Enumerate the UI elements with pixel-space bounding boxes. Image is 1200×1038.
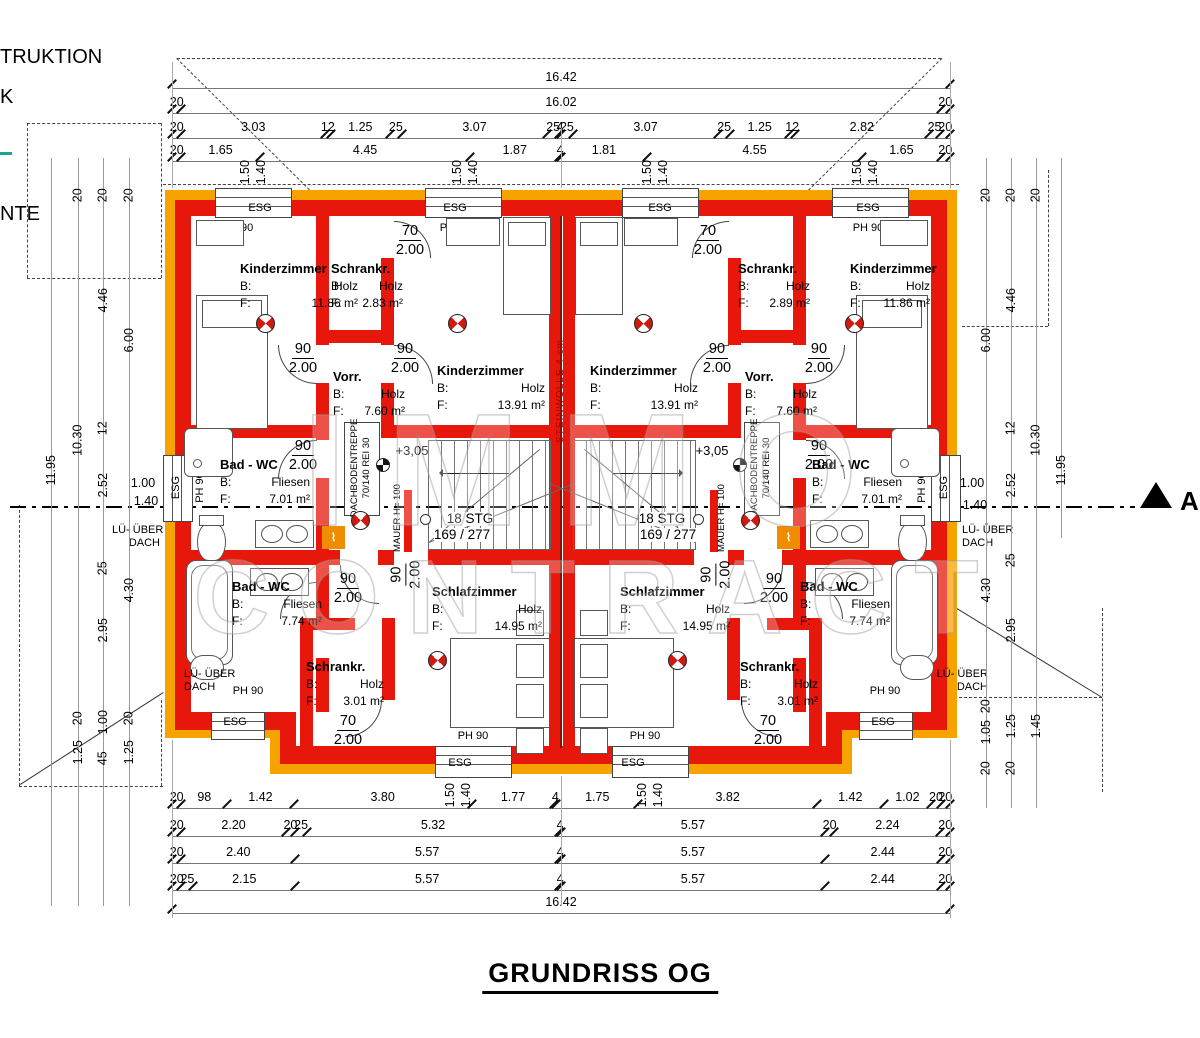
vent-note-line1: LÜ- ÜBER xyxy=(112,524,160,537)
left-box-right xyxy=(161,123,162,278)
area-value: 7.60 m² xyxy=(776,403,817,420)
floorplan-drawing: A TRUKTION K NTE STEINWOLLE 4 cm xyxy=(0,0,1200,1038)
wall-segment xyxy=(782,550,793,565)
outer-wall-red xyxy=(826,712,842,764)
extension-line xyxy=(561,128,562,188)
door-height: 2.00 xyxy=(407,557,425,593)
dim-label: 4.46 xyxy=(97,288,110,312)
attic-ladder-label: DACHBODENTREPPE 70/140 REI 30 xyxy=(348,408,374,528)
dim-label: 4.30 xyxy=(123,578,136,602)
bathtub xyxy=(186,560,233,665)
dim-row: 16.42 xyxy=(172,88,950,89)
room-label: Schrankr. B:Holz F:3.01 m² xyxy=(740,658,818,710)
door-width: 90 xyxy=(808,340,830,359)
vent-note-line2: DACH xyxy=(184,681,236,694)
room-name: Vorr. xyxy=(745,368,817,386)
door-width: 90 xyxy=(394,340,416,359)
door-width: 70 xyxy=(337,712,359,731)
dim-label: 1.05 xyxy=(980,720,993,744)
vent-note-line1: LÜ- ÜBER xyxy=(184,668,236,681)
dim-label: 20 xyxy=(72,711,85,725)
area-label: F: xyxy=(437,397,448,414)
floor-value: Holz xyxy=(706,601,730,618)
dim-label: 6.00 xyxy=(123,328,136,352)
eave-diagonal-left xyxy=(20,692,164,785)
area-value: 2.83 m² xyxy=(362,295,403,312)
attic-ladder-size: 70/140 REI 30 xyxy=(361,438,373,499)
left-box-bottom xyxy=(27,278,161,279)
area-value: 13.91 m² xyxy=(498,397,545,414)
room-name: Kinderzimmer xyxy=(850,260,930,278)
section-marker-triangle xyxy=(1140,482,1172,508)
vent-note-line2: DACH xyxy=(112,537,160,550)
bed-pillow xyxy=(580,222,618,246)
low-wall-text: MAUER H= 100 xyxy=(716,484,728,552)
extension-line xyxy=(172,740,173,918)
door-height: 2.00 xyxy=(750,731,786,749)
attic-ladder-text: DACHBODENTREPPE xyxy=(749,419,761,518)
nightstand xyxy=(580,728,608,754)
door-width: 90 xyxy=(292,437,314,456)
glass-label: ESG xyxy=(621,758,644,769)
dim-label: 1.40 xyxy=(467,160,480,184)
dim-label: 1.50 xyxy=(444,783,457,807)
attic-ladder-size: 70/140 REI 30 xyxy=(761,438,773,499)
floor-value: Holz xyxy=(794,676,818,693)
floor-value: Fliesen xyxy=(271,474,310,491)
room-name: Schrankr. xyxy=(738,260,810,278)
room-label: Vorr. B:Holz F:7.60 m² xyxy=(333,368,405,420)
door-size-label: 702.00 xyxy=(690,222,726,259)
glass-label: ESG xyxy=(871,717,894,728)
room-label: Bad - WC B:Fliesen F:7.74 m² xyxy=(800,578,890,630)
water-heater: ⌇ xyxy=(322,526,345,549)
dim-label: 1.25 xyxy=(1005,714,1018,738)
room-name: Kinderzimmer xyxy=(437,362,545,380)
area-label: F: xyxy=(620,618,631,635)
floor-label: B: xyxy=(740,676,751,693)
dim-label: 1.40 xyxy=(657,160,670,184)
glass-label: ESG xyxy=(248,203,271,214)
floor-value: Fliesen xyxy=(863,474,902,491)
bed-pillow xyxy=(580,644,608,678)
dim-label: 6.00 xyxy=(980,328,993,352)
floor-label: B: xyxy=(331,278,342,295)
parapet-label: PH 90 xyxy=(458,731,489,742)
outer-wall-orange xyxy=(270,764,852,774)
room-label: Kinderzimmer B:Holz F:13.91 m² xyxy=(437,362,545,414)
floor-label: B: xyxy=(800,596,811,613)
dim-label: 1.40 xyxy=(255,160,268,184)
dim-label: 20 xyxy=(1005,188,1018,202)
floor-label: B: xyxy=(232,596,243,613)
extension-line xyxy=(172,62,173,188)
door-size-label: 902.00 xyxy=(330,570,366,607)
outer-wall-orange xyxy=(270,730,280,774)
floor-label: B: xyxy=(306,676,317,693)
door-height: 2.00 xyxy=(330,731,366,749)
room-name: Schlafzimmer xyxy=(620,583,730,601)
dim-label: 45 xyxy=(97,751,110,765)
dim-label: 1.50 xyxy=(451,160,464,184)
left-lower-dash xyxy=(19,505,20,786)
door-width: 70 xyxy=(399,222,421,241)
ventilation-symbol xyxy=(634,314,653,333)
dim-row: 16.42 xyxy=(172,913,950,914)
outer-wall-red xyxy=(280,712,296,764)
door-size-label: 702.00 xyxy=(750,712,786,749)
water-heater-icon: ⌇ xyxy=(786,531,791,544)
door-width: 90 xyxy=(763,570,785,589)
dresser xyxy=(624,218,678,246)
dim-line xyxy=(103,158,104,906)
ventilation-symbol xyxy=(448,314,467,333)
wall-segment xyxy=(428,550,549,565)
area-label: F: xyxy=(850,295,861,312)
area-label: F: xyxy=(812,491,823,508)
dim-label: 2.95 xyxy=(1005,618,1018,642)
bed-pillow xyxy=(516,644,544,678)
nightstand xyxy=(580,610,608,636)
vent-over-roof-note: LÜ- ÜBER DACH xyxy=(936,668,988,694)
floor-label: B: xyxy=(620,601,631,618)
dim-label: 10.30 xyxy=(72,424,85,455)
floor-value: Holz xyxy=(521,380,545,397)
right-lower-dash-h xyxy=(959,697,1102,698)
door-size-label: 902.00 xyxy=(387,557,424,593)
ventilation-symbol xyxy=(256,314,275,333)
room-label: Bad - WC B:Fliesen F:7.01 m² xyxy=(220,456,310,508)
dim-label: 20 xyxy=(123,188,136,202)
wall-segment xyxy=(728,383,741,438)
door-height: 2.00 xyxy=(330,589,366,607)
edge-teal-mark xyxy=(0,152,12,155)
level-label: +3,05 xyxy=(696,444,729,457)
door-width: 90 xyxy=(387,564,406,586)
stair-count-label: 18 STG xyxy=(447,512,494,526)
dim-label: 20 xyxy=(980,761,993,775)
toilet xyxy=(197,523,226,561)
floor-value: Holz xyxy=(379,278,403,295)
dim-label: 12 xyxy=(1005,421,1018,435)
door-width: 90 xyxy=(292,340,314,359)
area-label: F: xyxy=(220,491,231,508)
low-wall-label: MAUER H= 100 xyxy=(392,478,404,558)
room-label: Schrankr. B:Holz F:2.89 m² xyxy=(738,260,810,312)
floor-label: B: xyxy=(745,386,756,403)
area-value: 14.95 m² xyxy=(683,618,730,635)
dim-label: 1.40 xyxy=(460,783,473,807)
section-marker-label: A xyxy=(1180,486,1199,517)
left-box-top xyxy=(27,123,161,124)
floor-label: B: xyxy=(220,474,231,491)
dim-label: 1.50 xyxy=(851,160,864,184)
area-value: 7.74 m² xyxy=(281,613,322,630)
room-label: Kinderzimmer B:Holz F:11.86 m² xyxy=(850,260,930,312)
dim-line xyxy=(1036,158,1037,808)
bed-pillow xyxy=(516,684,544,718)
glass-label: ESG xyxy=(648,203,671,214)
dresser xyxy=(446,218,500,246)
left-lower-right xyxy=(161,700,162,786)
party-wall-insulation-line xyxy=(560,216,562,748)
dim-line xyxy=(78,158,79,906)
room-label: Bad - WC B:Fliesen F:7.74 m² xyxy=(232,578,322,630)
stair-start-circle xyxy=(420,514,431,525)
door-height: 2.00 xyxy=(690,241,726,259)
low-wall-label: MAUER H= 100 xyxy=(716,478,728,558)
area-label: F: xyxy=(432,618,443,635)
room-label: Schlafzimmer B:Holz F:14.95 m² xyxy=(620,583,730,635)
area-value: 3.01 m² xyxy=(343,693,384,710)
door-size-label: 902.00 xyxy=(285,340,321,377)
window xyxy=(435,746,512,778)
double-washbasin xyxy=(255,520,314,548)
right-lower-dash-v xyxy=(1102,608,1103,792)
room-label: Schlafzimmer B:Holz F:14.95 m² xyxy=(432,583,542,635)
level-marker xyxy=(376,458,390,472)
dim-label: 1.40 xyxy=(652,783,665,807)
door-size-label: 702.00 xyxy=(330,712,366,749)
room-name: Schrankr. xyxy=(331,260,403,278)
dim-label: 20 xyxy=(123,711,136,725)
dim-label: 20 xyxy=(97,188,110,202)
floor-label: B: xyxy=(850,278,861,295)
ventilation-symbol xyxy=(428,651,447,670)
room-label: Kinderzimmer B:Holz F:13.91 m² xyxy=(590,362,698,414)
drawing-title: GRUNDRISS OG xyxy=(482,958,718,994)
floor-value: Holz xyxy=(360,676,384,693)
door-height: 2.00 xyxy=(699,359,735,377)
water-heater: ⌇ xyxy=(777,526,800,549)
dim-label: 12 xyxy=(97,421,110,435)
dim-label: 11.95 xyxy=(45,455,58,485)
nightstand xyxy=(516,728,544,754)
floor-label: B: xyxy=(333,386,344,403)
area-label: F: xyxy=(738,295,749,312)
floor-value: Fliesen xyxy=(283,596,322,613)
bathtub xyxy=(891,560,938,665)
glass-label: ESG xyxy=(172,475,183,498)
water-heater-icon: ⌇ xyxy=(331,531,336,544)
dim-label: 1.45 xyxy=(1030,714,1043,738)
area-value: 7.01 m² xyxy=(269,491,310,508)
room-label: Vorr. B:Holz F:7.60 m² xyxy=(745,368,817,420)
left-box-left xyxy=(27,123,28,278)
dim-label: 20 xyxy=(1005,761,1018,775)
parapet-label: PH 90 xyxy=(233,686,264,697)
toilet xyxy=(898,523,927,561)
edge-text-konstruktion: TRUKTION xyxy=(0,46,102,69)
stair-direction-arrow xyxy=(443,473,509,474)
extension-line xyxy=(950,740,951,918)
door-height: 2.00 xyxy=(756,589,792,607)
ventilation-symbol xyxy=(668,651,687,670)
area-label: F: xyxy=(232,613,243,630)
dim-label: 10.30 xyxy=(1030,424,1043,455)
floor-label: B: xyxy=(240,278,251,295)
room-name: Vorr. xyxy=(333,368,405,386)
roof-outline-top xyxy=(177,58,941,59)
glass-label: ESG xyxy=(443,203,466,214)
door-size-label: 902.00 xyxy=(756,570,792,607)
stair-start-circle xyxy=(693,514,704,525)
stair-direction-arrow xyxy=(613,473,679,474)
toilet-tank xyxy=(900,515,925,526)
attic-ladder-label: DACHBODENTREPPE 70/140 REI 30 xyxy=(748,408,774,528)
outer-wall-orange xyxy=(842,730,852,774)
room-label: Bad - WC B:Fliesen F:7.01 m² xyxy=(812,456,902,508)
vent-over-roof-note: LÜ- ÜBER DACH xyxy=(112,524,160,550)
dim-label: 2.95 xyxy=(97,618,110,642)
wall-segment xyxy=(741,330,793,343)
area-value: 7.74 m² xyxy=(849,613,890,630)
floor-value: Holz xyxy=(906,278,930,295)
dim-label: 1.50 xyxy=(239,160,252,184)
insulation-text: STEINWOLLE 4 cm xyxy=(555,339,568,443)
dim-label: 1.40 xyxy=(867,160,880,184)
floor-label: B: xyxy=(437,380,448,397)
dresser xyxy=(880,220,928,246)
door-size-label: 902.00 xyxy=(699,340,735,377)
door-height: 2.00 xyxy=(392,241,428,259)
door-size-label: 702.00 xyxy=(392,222,428,259)
dim-label: 1.00 xyxy=(960,477,984,490)
door-width: 90 xyxy=(808,437,830,456)
floor-value: Holz xyxy=(381,386,405,403)
attic-ladder-text: DACHBODENTREPPE xyxy=(349,419,361,518)
glass-label: ESG xyxy=(448,758,471,769)
room-name: Bad - WC xyxy=(800,578,890,596)
dim-label: 11.95 xyxy=(1055,455,1068,485)
dim-label: 4.30 xyxy=(980,578,993,602)
glass-label: ESG xyxy=(856,203,879,214)
floor-value: Fliesen xyxy=(851,596,890,613)
area-label: F: xyxy=(745,403,756,420)
floor-value: Holz xyxy=(786,278,810,295)
area-value: 14.95 m² xyxy=(495,618,542,635)
wall-segment xyxy=(329,550,340,565)
stair-riser-label: 169 / 277 xyxy=(640,528,696,542)
dim-label: 1.40 xyxy=(963,499,987,512)
dim-label: 1.25 xyxy=(123,740,136,764)
dim-label: 2.52 xyxy=(97,473,110,497)
left-lower-bottom xyxy=(19,786,163,787)
parapet-label: PH 90 xyxy=(630,731,661,742)
floor-label: B: xyxy=(432,601,443,618)
ventilation-symbol xyxy=(845,314,864,333)
dim-label: 1.50 xyxy=(641,160,654,184)
dim-label: 25 xyxy=(97,561,110,575)
room-name: Schlafzimmer xyxy=(432,583,542,601)
stair-riser-label: 169 / 277 xyxy=(434,528,490,542)
bed-pillow xyxy=(508,222,546,246)
area-value: 7.60 m² xyxy=(364,403,405,420)
low-wall-text: MAUER H= 100 xyxy=(392,484,404,552)
area-label: F: xyxy=(800,613,811,630)
area-value: 13.91 m² xyxy=(651,397,698,414)
dim-label: 25 xyxy=(1005,553,1018,567)
dim-label: 20 xyxy=(72,188,85,202)
dim-row: 2016.0220 xyxy=(172,113,950,114)
dim-label: 1.00 xyxy=(97,710,110,734)
toilet xyxy=(900,655,934,680)
area-label: F: xyxy=(306,693,317,710)
ventilation-symbol xyxy=(741,511,760,530)
wall-segment xyxy=(329,330,381,343)
right-upper-dash-v xyxy=(1048,170,1049,326)
room-label: Schrankr. B:Holz F:3.01 m² xyxy=(306,658,384,710)
door-width: 90 xyxy=(337,570,359,589)
ventilation-symbol xyxy=(351,511,370,530)
dim-label: 1.40 xyxy=(134,495,158,508)
door-width: 70 xyxy=(697,222,719,241)
door-width: 70 xyxy=(757,712,779,731)
floor-value: Holz xyxy=(674,380,698,397)
glass-label: ESG xyxy=(223,717,246,728)
room-name: Bad - WC xyxy=(812,456,902,474)
room-label: Schrankr. B:Holz F:2.83 m² xyxy=(331,260,403,312)
dim-label: 2.52 xyxy=(1005,473,1018,497)
door-width: 90 xyxy=(706,340,728,359)
dim-label: 4.46 xyxy=(1005,288,1018,312)
dim-label: 20 xyxy=(980,188,993,202)
edge-text-nte: NTE xyxy=(0,203,40,226)
floor-value: Holz xyxy=(518,601,542,618)
low-wall xyxy=(404,490,412,552)
area-value: 7.01 m² xyxy=(861,491,902,508)
wall-segment xyxy=(727,630,740,700)
wall-segment xyxy=(573,425,728,438)
level-label: +3,05 xyxy=(396,444,429,457)
dim-label: 20 xyxy=(980,699,993,713)
floor-label: B: xyxy=(738,278,749,295)
insulation-label: STEINWOLLE 4 cm xyxy=(553,311,569,471)
room-name: Bad - WC xyxy=(220,456,310,474)
dim-label: 1.25 xyxy=(72,740,85,764)
room-name: Schrankr. xyxy=(306,658,384,676)
level-marker xyxy=(733,458,747,472)
dim-label: 1.50 xyxy=(636,783,649,807)
wall-segment xyxy=(573,550,694,565)
parapet-label: PH 90 xyxy=(870,686,901,697)
room-name: Kinderzimmer xyxy=(590,362,698,380)
wall-segment xyxy=(394,425,549,438)
floor-value: Holz xyxy=(793,386,817,403)
bed-pillow xyxy=(580,684,608,718)
toilet-tank xyxy=(199,515,224,526)
floor-label: B: xyxy=(812,474,823,491)
floor-label: B: xyxy=(590,380,601,397)
glass-label: ESG xyxy=(940,475,951,498)
dim-label: 20 xyxy=(1030,188,1043,202)
parapet-label: PH 90 xyxy=(853,223,884,234)
dim-line xyxy=(129,158,130,906)
wall-segment xyxy=(316,383,329,440)
area-value: 2.89 m² xyxy=(769,295,810,312)
edge-text-k: K xyxy=(0,86,13,109)
dim-line xyxy=(51,158,52,906)
dresser xyxy=(196,220,244,246)
extension-line xyxy=(950,62,951,188)
extension-line xyxy=(561,776,562,906)
vent-note-line2: DACH xyxy=(936,681,988,694)
area-value: 11.86 m² xyxy=(884,295,930,312)
area-label: F: xyxy=(331,295,342,312)
area-label: F: xyxy=(333,403,344,420)
vent-note-line1: LÜ- ÜBER xyxy=(936,668,988,681)
stair-count-label: 18 STG xyxy=(639,512,686,526)
